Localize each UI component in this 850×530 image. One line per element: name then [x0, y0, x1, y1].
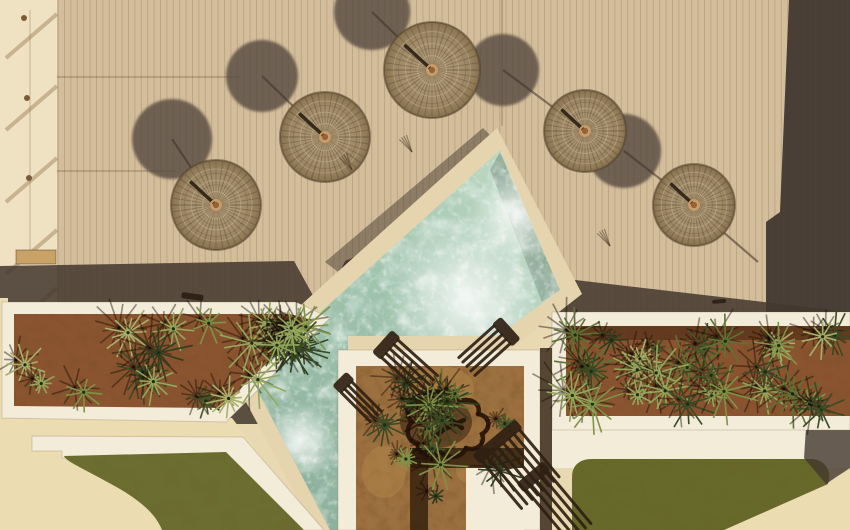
plant-center	[275, 344, 278, 347]
plant-leaf	[819, 406, 830, 407]
straw-umbrella	[653, 164, 735, 246]
straw-umbrella	[384, 22, 480, 118]
scene-canvas	[0, 0, 850, 530]
plant-center	[709, 374, 712, 377]
plant-center	[724, 340, 727, 343]
aerial-pool-scene	[0, 0, 850, 530]
plant-leaf	[611, 340, 627, 341]
plant-shadow	[446, 389, 447, 401]
plant-center	[574, 333, 577, 336]
umbrella-hub	[582, 128, 588, 134]
plant-shadow	[268, 340, 269, 356]
plant-leaf	[7, 364, 25, 365]
plant-center	[439, 463, 442, 466]
plant-leaf	[406, 459, 407, 471]
fence-post	[21, 15, 27, 21]
plant-center	[290, 327, 293, 330]
plant-leaf	[205, 386, 206, 401]
plant-center	[227, 397, 230, 400]
plant-shadow	[810, 400, 824, 401]
plant-leaf	[256, 345, 277, 346]
plant-center	[636, 393, 639, 396]
plant-center	[453, 392, 456, 395]
plant-center	[686, 402, 689, 405]
umbrella-hub	[322, 134, 328, 140]
plant-center	[40, 382, 43, 385]
plant-leaf	[597, 339, 611, 340]
plant-center	[686, 366, 689, 369]
plant-leaf	[744, 372, 765, 373]
plant-leaf	[209, 322, 227, 323]
plant-shadow	[658, 398, 679, 399]
fence-post	[26, 175, 32, 181]
plant-leaf	[793, 394, 794, 429]
plant-center	[722, 390, 725, 393]
umbrella-hub	[691, 202, 697, 208]
plant-shadow	[397, 440, 398, 454]
pool-ladder	[16, 250, 56, 264]
plant-center	[777, 344, 780, 347]
plant-center	[304, 325, 307, 328]
plant-center	[591, 402, 594, 405]
plant-center	[82, 391, 85, 394]
plant-center	[172, 327, 175, 330]
plant-center	[440, 419, 443, 422]
plant-leaf	[661, 404, 688, 405]
plant-leaf	[574, 307, 575, 335]
plant-leaf	[725, 314, 726, 342]
umbrella-hub	[429, 67, 435, 73]
plant-center	[126, 331, 129, 334]
straw-umbrella	[544, 90, 626, 172]
plant-center	[764, 370, 767, 373]
plant-center	[383, 423, 386, 426]
plant-center	[404, 457, 407, 460]
plant-shadow	[735, 366, 756, 367]
plant-center	[157, 351, 160, 354]
plant-center	[431, 447, 434, 450]
plant-leaf	[615, 369, 638, 370]
plant-center	[817, 405, 820, 408]
plant-center	[610, 339, 613, 342]
fence-post	[24, 95, 30, 101]
straw-umbrella	[171, 160, 261, 250]
plant-center	[434, 495, 437, 498]
plant-center	[152, 380, 155, 383]
plant-center	[503, 422, 506, 425]
plant-leaf	[656, 345, 657, 373]
plant-center	[655, 371, 658, 374]
plant-shadow	[259, 300, 260, 320]
plant-center	[821, 335, 824, 338]
plant-center	[571, 394, 574, 397]
umbrella-hub	[213, 202, 219, 208]
plant-center	[23, 363, 26, 366]
plant-shadow	[470, 465, 491, 466]
plant-leaf	[725, 341, 726, 356]
plant-shadow	[445, 379, 446, 388]
plant-shadow	[687, 386, 715, 387]
plant-center	[590, 370, 593, 373]
straw-umbrella	[280, 92, 370, 182]
plant-leaf	[84, 392, 85, 412]
plant-center	[256, 378, 259, 381]
